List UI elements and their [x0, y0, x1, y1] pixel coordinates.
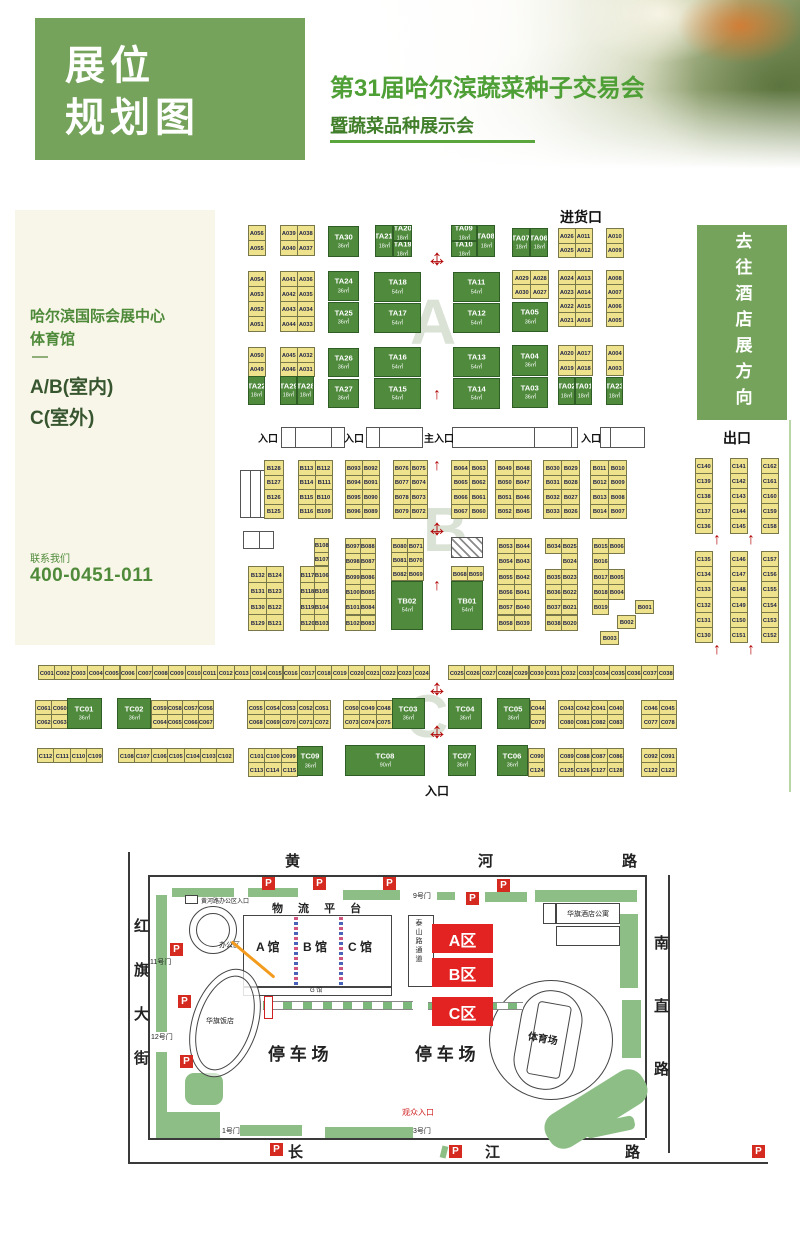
booth-name: TA02: [558, 383, 575, 391]
booth-label: C054: [266, 704, 280, 710]
green-area: [343, 890, 400, 900]
booth-label: C075: [377, 718, 391, 724]
booth-label: A035: [299, 291, 313, 297]
booth-C101: C101: [248, 748, 265, 763]
booth-label: B075: [412, 465, 426, 471]
booth-label: B090: [364, 494, 378, 500]
booth-label: C006: [121, 669, 135, 675]
booth-B083: B083: [360, 615, 376, 631]
direction-cross-arrow: ↔↕: [423, 244, 451, 272]
map-building: 华旗酒店公寓: [556, 903, 620, 924]
booth-A016: A016: [575, 312, 593, 327]
booth-label: C016: [284, 669, 298, 675]
booth-label: C146: [732, 556, 746, 562]
booth-name: TC01: [75, 705, 94, 713]
booth-B090: B090: [362, 489, 380, 505]
parking-sign: P: [180, 1055, 193, 1068]
arrow-glyph: ↕: [423, 674, 451, 702]
hotel-direction-text: 去往酒店展方向: [730, 232, 755, 414]
booth-C015: C015: [266, 665, 283, 680]
booth-label: A046: [282, 366, 296, 372]
plan-label: 入口: [258, 430, 278, 445]
hotel-direction-panel: 去往酒店展方向: [697, 225, 787, 420]
booth-label: B083: [361, 619, 375, 625]
booth-label: C109: [88, 752, 102, 758]
booth-label: C018: [317, 669, 331, 675]
booth-area: 18㎡: [533, 245, 544, 250]
map-label: 路: [625, 1141, 640, 1162]
booth-C079: C079: [530, 714, 546, 729]
booth-label: B037: [547, 604, 561, 610]
booth-C091: C091: [659, 748, 678, 763]
booth-name: TA11: [468, 279, 486, 287]
booth-label: C122: [643, 766, 657, 772]
booth-A008: A008: [606, 270, 624, 285]
booth-A013: A013: [575, 270, 593, 285]
booth-label: B060: [472, 508, 486, 514]
booth-label: C058: [168, 704, 182, 710]
booth-B117: B117: [300, 566, 315, 583]
booth-label: C034: [595, 669, 609, 675]
booth-C143: C143: [730, 488, 748, 504]
booth-block: C044C079: [530, 700, 546, 729]
booth-B017: B017: [592, 569, 609, 585]
booth-C037: C037: [641, 665, 658, 680]
booth-C103: C103: [200, 748, 217, 763]
booth-label: C036: [627, 669, 641, 675]
booth-B124: B124: [266, 566, 285, 583]
booth-block: C092C091C122C123: [641, 748, 677, 777]
booth-label: A003: [608, 365, 622, 371]
booth-label: C154: [763, 601, 777, 607]
booth-C040: C040: [607, 700, 624, 715]
booth-B121: B121: [266, 614, 285, 631]
booth-TA15: TA1554㎡: [374, 378, 421, 409]
booth-C058: C058: [167, 700, 184, 715]
booth-label: A004: [608, 350, 622, 356]
booth-C077: C077: [641, 714, 660, 729]
booth-label: B095: [347, 494, 361, 500]
booth-C009: C009: [168, 665, 185, 680]
booth-A027: A027: [530, 284, 549, 299]
booth-C022: C022: [380, 665, 397, 680]
booth-B073: B073: [410, 489, 428, 505]
booth-C068: C068: [247, 714, 265, 729]
booth-label: C150: [732, 617, 746, 623]
booth-C045: C045: [659, 700, 678, 715]
booth-label: C061: [37, 704, 51, 710]
booth-name: TA17: [388, 310, 406, 318]
booth-label: C088: [576, 752, 590, 758]
booth-A028: A028: [530, 270, 549, 285]
booth-TA14: TA1454㎡: [453, 378, 500, 409]
booth-TA20: TA2018㎡: [393, 225, 412, 241]
booth-A037: A037: [297, 240, 315, 256]
booth-B125: B125: [264, 504, 284, 520]
booth-C092: C092: [641, 748, 660, 763]
booth-B008: B008: [608, 489, 627, 505]
green-area: [156, 1112, 220, 1138]
booth-A015: A015: [575, 298, 593, 313]
booth-C087: C087: [591, 748, 608, 763]
booth-area: 54㎡: [392, 396, 403, 401]
booth-C162: C162: [761, 458, 779, 474]
booth-A024: A024: [558, 270, 576, 285]
booth-block: B132B124B131B123B130B122B129B121: [248, 566, 284, 631]
booth-label: C012: [219, 669, 233, 675]
booth-B129: B129: [248, 614, 267, 631]
booth-label: B026: [564, 508, 578, 514]
booth-area: 18㎡: [283, 393, 294, 398]
booth-TA23: TA2318㎡: [606, 377, 623, 405]
booth-C144: C144: [730, 503, 748, 519]
booth-A017: A017: [575, 345, 593, 361]
booth-B102: B102: [345, 615, 361, 631]
booth-label: C106: [153, 752, 167, 758]
booth-label: B093: [347, 465, 361, 471]
booth-C125: C125: [558, 762, 575, 777]
booth-B039: B039: [514, 615, 532, 631]
booth-C088: C088: [574, 748, 591, 763]
booth-label: C042: [576, 704, 590, 710]
booth-C089: C089: [558, 748, 575, 763]
booth-C138: C138: [695, 488, 713, 504]
booth-label: B015: [594, 543, 608, 549]
booth-A056: A056: [248, 225, 266, 241]
booth-label: C019: [333, 669, 347, 675]
booth-block: B011B010B012B009B013B008B014B007: [590, 460, 627, 519]
booth-label: C051: [315, 704, 329, 710]
booth-B021: B021: [561, 599, 578, 615]
booth-A018: A018: [575, 360, 593, 376]
booth-label: B127: [267, 479, 281, 485]
booth-block: A020A017A019A018: [558, 345, 593, 376]
booth-C036: C036: [625, 665, 642, 680]
booth-label: B131: [250, 587, 264, 593]
booth-block: C046C045C077C078: [641, 700, 677, 729]
booth-A041: A041: [280, 271, 298, 287]
booth-B098: B098: [345, 553, 361, 569]
booth-label: B094: [347, 479, 361, 485]
booth-C067: C067: [198, 714, 215, 729]
booth-C070: C070: [280, 714, 298, 729]
booth-label: C022: [382, 669, 396, 675]
booth-label: C038: [659, 669, 673, 675]
booth-label: B104: [315, 603, 329, 609]
booth-name: TA01: [575, 383, 592, 391]
booth-label: B039: [516, 619, 530, 625]
booth-A044: A044: [280, 316, 298, 332]
booth-label: B062: [472, 479, 486, 485]
booth-C041: C041: [591, 700, 608, 715]
booth-label: C105: [169, 752, 183, 758]
booth-area: 90㎡: [379, 763, 390, 768]
booth-C028: C028: [496, 665, 513, 680]
booth-label: C102: [218, 752, 232, 758]
booth-label: B010: [611, 465, 625, 471]
booth-B096: B096: [345, 504, 363, 520]
direction-cross-arrow: ↔↕: [423, 514, 451, 542]
booth-label: B089: [364, 508, 378, 514]
booth-B086: B086: [360, 569, 376, 585]
booth-label: B052: [498, 508, 512, 514]
booth-C114: C114: [264, 762, 281, 777]
booth-label: A050: [250, 352, 264, 358]
entrance-seg: [453, 428, 535, 447]
booth-label: B030: [546, 465, 560, 471]
booth-label: C153: [763, 617, 777, 623]
booth-A026: A026: [558, 228, 576, 244]
booth-label: A025: [560, 247, 574, 253]
booth-name: TB01: [458, 597, 477, 605]
booth-label: A028: [533, 274, 547, 280]
direction-cross-arrow: ↔↕: [423, 717, 451, 745]
green-area: [325, 1127, 413, 1138]
booth-label: A031: [299, 366, 313, 372]
booth-A035: A035: [297, 286, 315, 302]
booth-B106: B106: [314, 566, 329, 583]
booth-B065: B065: [451, 475, 470, 491]
booth-area: 36㎡: [338, 244, 349, 249]
booth-C155: C155: [761, 581, 779, 597]
plan-label: 进货口: [560, 207, 602, 227]
booth-label: C151: [732, 632, 746, 638]
booth-label: B048: [516, 465, 530, 471]
booth-label: C087: [592, 752, 606, 758]
booth-C004: C004: [87, 665, 104, 680]
booth-label: B059: [469, 570, 483, 576]
booth-label: C113: [250, 766, 263, 772]
booth-label: C070: [282, 718, 296, 724]
booth-label: B013: [593, 494, 607, 500]
booth-B052: B052: [495, 504, 514, 520]
booth-label: C128: [609, 766, 623, 772]
booth-label: B080: [393, 542, 407, 548]
booth-B013: B013: [590, 489, 609, 505]
map-road-name: 红旗大街: [130, 918, 151, 1094]
booth-TC06: TC0636㎡: [497, 745, 528, 776]
booth-B062: B062: [469, 475, 488, 491]
booth-label: C056: [199, 704, 213, 710]
booth-B036: B036: [545, 584, 562, 600]
booth-label: C156: [763, 571, 777, 577]
booth-label: B128: [267, 465, 281, 471]
booth-C003: C003: [71, 665, 88, 680]
booth-label: A011: [577, 233, 590, 239]
booth-label: A007: [608, 288, 622, 294]
booth-A022: A022: [558, 298, 576, 313]
booth-label: A045: [282, 352, 296, 358]
booth-A043: A043: [280, 301, 298, 317]
booth-C030: C030: [529, 665, 546, 680]
booth-area: 18㎡: [397, 235, 408, 240]
booth-label: C037: [643, 669, 657, 675]
booth-TC09: TC0936㎡: [297, 746, 323, 776]
booth-label: C141: [732, 463, 746, 469]
booth-TA25: TA2536㎡: [328, 302, 359, 333]
booth-label: B028: [564, 479, 578, 485]
booth-TA22: TA2218㎡: [248, 376, 265, 405]
direction-up-arrow: ↑: [429, 457, 445, 475]
booth-block: A026A011A025A012: [558, 228, 593, 258]
booth-C073: C073: [343, 714, 360, 729]
booth-TB01: TB0154㎡: [451, 581, 483, 630]
booth-label: C124: [530, 766, 544, 772]
booth-C160: C160: [761, 488, 779, 504]
booth-block: B034B025B024B035B023B036B022B037B021B038…: [545, 538, 578, 631]
booth-label: C072: [315, 718, 329, 724]
booth-B091: B091: [362, 475, 380, 491]
booth-B049: B049: [495, 460, 514, 476]
booth-label: A042: [282, 291, 296, 297]
booth-B115: B115: [298, 489, 316, 505]
booth-C100: C100: [264, 748, 281, 763]
booth-label: B111: [317, 479, 330, 485]
booth-name: TC06: [503, 752, 522, 760]
parking-sign: P: [752, 1145, 765, 1158]
booth-A014: A014: [575, 284, 593, 299]
booth-B045: B045: [513, 504, 532, 520]
booth-C133: C133: [695, 581, 713, 597]
booth-label: B035: [547, 574, 561, 580]
booth-label: C005: [105, 669, 119, 675]
booth-label: B115: [300, 494, 313, 500]
booth-B085: B085: [360, 584, 376, 600]
booth-label: A015: [577, 302, 591, 308]
booth-TA26: TA2636㎡: [328, 348, 359, 377]
booth-C115: C115: [281, 762, 298, 777]
booth-C140: C140: [695, 458, 713, 474]
page-subtitle: 暨蔬菜品种展示会: [330, 112, 474, 138]
booth-block: C108C107C106C105C104C103C102: [118, 748, 234, 763]
booth-label: B001: [638, 604, 652, 610]
booth-B019: B019: [592, 599, 609, 615]
booth-C132: C132: [695, 597, 713, 613]
booth-B132: B132: [248, 566, 267, 583]
booth-label: C040: [609, 704, 623, 710]
booth-label: C125: [560, 766, 574, 772]
booth-C081: C081: [574, 714, 591, 729]
booth-A032: A032: [297, 347, 315, 363]
booth-block: B001: [635, 600, 654, 614]
booth-B002: B002: [617, 615, 636, 629]
booth-B051: B051: [495, 489, 514, 505]
booth-block: B093B092B094B091B095B090B096B089: [345, 460, 380, 519]
booth-label: C003: [72, 669, 86, 675]
booth-B056: B056: [497, 584, 515, 600]
booth-A021: A021: [558, 312, 576, 327]
parking-sign: P: [313, 877, 326, 890]
booth-A012: A012: [575, 243, 593, 259]
booth-label: B126: [267, 494, 281, 500]
booth-name: TB02: [398, 597, 417, 605]
booth-block: A024A013A023A014A022A015A021A016: [558, 270, 593, 327]
booth-label: B061: [472, 494, 486, 500]
booth-name: TA21: [375, 233, 393, 241]
booth-label: C020: [349, 669, 363, 675]
parking-sign: P: [262, 877, 275, 890]
booth-TA10: TA1018㎡: [451, 241, 477, 257]
map-label: 3号门: [413, 1126, 431, 1136]
booth-block: B113B112B114B111B115B110B116B109: [298, 460, 333, 519]
booth-label: B122: [268, 603, 282, 609]
booth-block: A029A028A030A027: [512, 270, 549, 299]
booth-C032: C032: [561, 665, 578, 680]
booth-C044: C044: [530, 700, 546, 715]
booth-label: B070: [409, 556, 423, 562]
booth-label: C104: [185, 752, 199, 758]
booth-name: TC03: [399, 705, 418, 713]
booth-label: A032: [299, 352, 313, 358]
booth-label: B040: [516, 604, 530, 610]
booth-B047: B047: [513, 475, 532, 491]
booth-name: TA23: [606, 383, 623, 391]
booth-B063: B063: [469, 460, 488, 476]
booth-label: A052: [250, 306, 264, 312]
booth-label: C091: [661, 752, 675, 758]
booth-B088: B088: [360, 538, 376, 554]
booth-label: B103: [315, 619, 329, 625]
booth-name: TC05: [504, 705, 523, 713]
booth-area: 54㎡: [392, 320, 403, 325]
booth-label: B121: [268, 619, 282, 625]
green-area: [240, 1125, 302, 1136]
booth-B004: B004: [608, 584, 625, 600]
booth-TA24: TA2436㎡: [328, 271, 359, 301]
booth-label: C101: [250, 752, 264, 758]
booth-C150: C150: [730, 612, 748, 628]
entrance-seg: [380, 428, 424, 447]
booth-label: B078: [395, 494, 409, 500]
plan-label: 入口: [344, 430, 364, 445]
booth-label: B042: [516, 574, 530, 580]
booth-area: 54㎡: [471, 364, 482, 369]
map-label: 物 流 平 台: [272, 900, 367, 916]
booth-C002: C002: [54, 665, 71, 680]
booth-B078: B078: [393, 489, 411, 505]
booth-TA11: TA1154㎡: [453, 272, 500, 302]
booth-TA06: TA0618㎡: [530, 228, 548, 257]
map-label: 长: [288, 1141, 303, 1162]
booth-B048: B048: [513, 460, 532, 476]
booth-B104: B104: [314, 598, 329, 615]
booth-C161: C161: [761, 473, 779, 489]
booth-name: TA14: [467, 385, 485, 393]
booth-label: B003: [603, 635, 617, 641]
booth-area: 36㎡: [524, 395, 535, 400]
booth-C106: C106: [151, 748, 168, 763]
booth-C107: C107: [134, 748, 151, 763]
booth-name: TC04: [456, 705, 475, 713]
booth-area: 36㎡: [508, 716, 519, 721]
zone-A区: A区: [432, 924, 493, 953]
booth-TA17: TA1754㎡: [374, 303, 421, 333]
booth-label: C126: [576, 766, 590, 772]
booth-B100: B100: [345, 584, 361, 600]
booth-A034: A034: [297, 301, 315, 317]
booth-block: C101C100C099C113C114C115: [248, 748, 298, 777]
booth-C157: C157: [761, 551, 779, 567]
booth-label: C130: [697, 632, 711, 638]
zone-C区: C区: [432, 997, 493, 1026]
booth-label: B101: [346, 604, 360, 610]
entrance-box: [452, 427, 578, 448]
booth-label: C079: [531, 718, 545, 724]
booth-label: C149: [732, 601, 746, 607]
booth-label: C048: [377, 704, 391, 710]
booth-label: B019: [594, 604, 608, 610]
booth-B043: B043: [514, 553, 532, 569]
